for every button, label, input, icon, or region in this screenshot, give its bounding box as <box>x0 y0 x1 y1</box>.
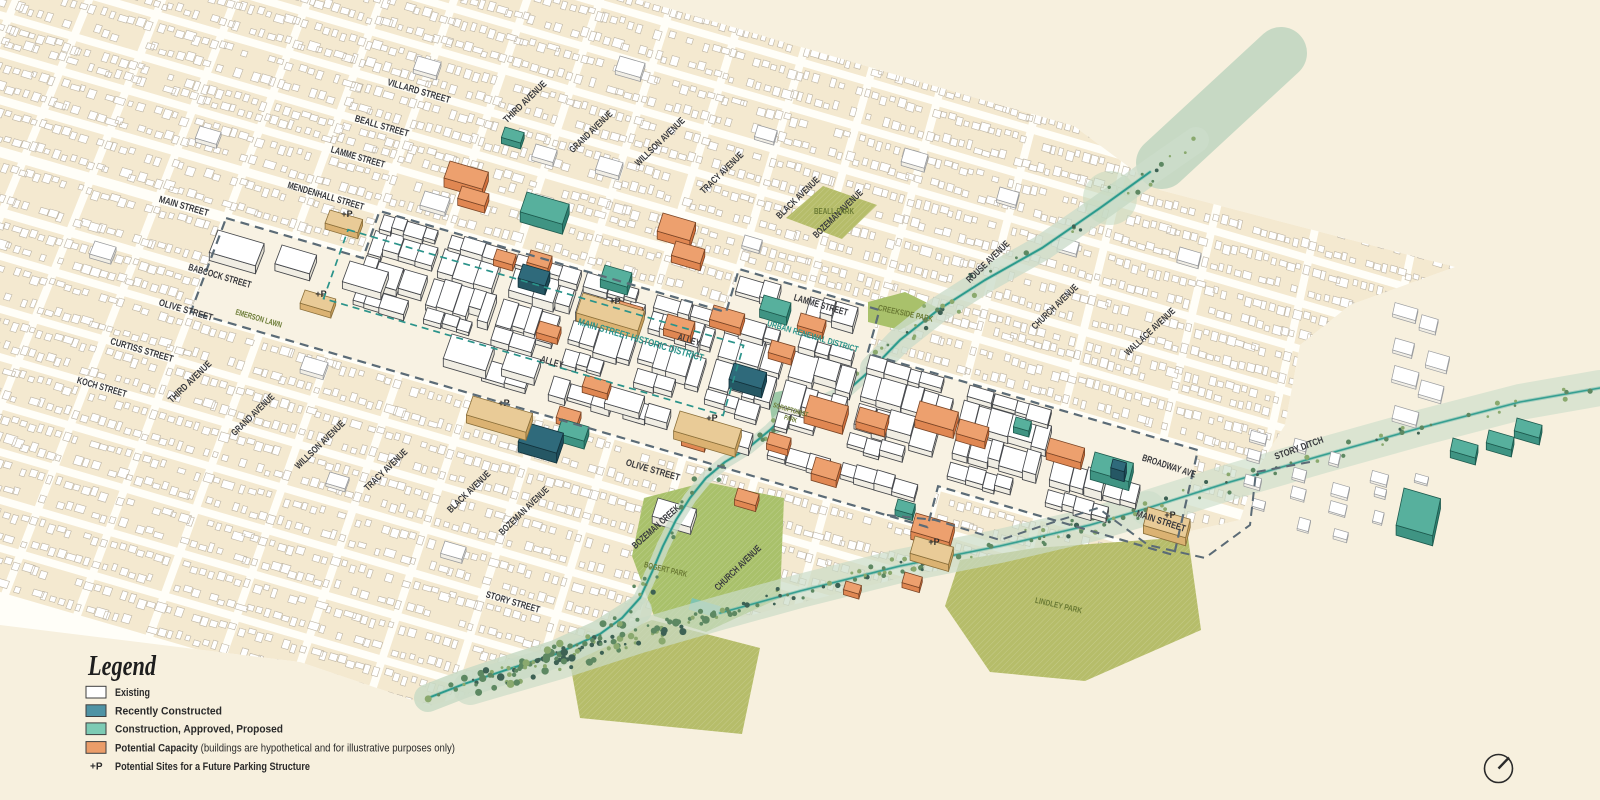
svg-text:+P: +P <box>928 537 939 547</box>
svg-text:Construction, Approved, Propos: Construction, Approved, Proposed <box>115 724 283 736</box>
svg-text:Potential Capacity (buildings: Potential Capacity (buildings are hypoth… <box>115 742 455 754</box>
svg-text:Existing: Existing <box>115 687 150 699</box>
svg-text:+P: +P <box>706 413 717 423</box>
svg-text:Recently Constructed: Recently Constructed <box>115 706 222 718</box>
svg-text:+P: +P <box>609 296 620 306</box>
svg-text:Legend: Legend <box>87 651 157 682</box>
svg-text:BEALL PARK: BEALL PARK <box>814 207 854 216</box>
svg-text:+P: +P <box>341 209 352 219</box>
svg-text:Potential Sites for a Future P: Potential Sites for a Future Parking Str… <box>115 761 310 773</box>
svg-text:+P: +P <box>90 762 103 773</box>
